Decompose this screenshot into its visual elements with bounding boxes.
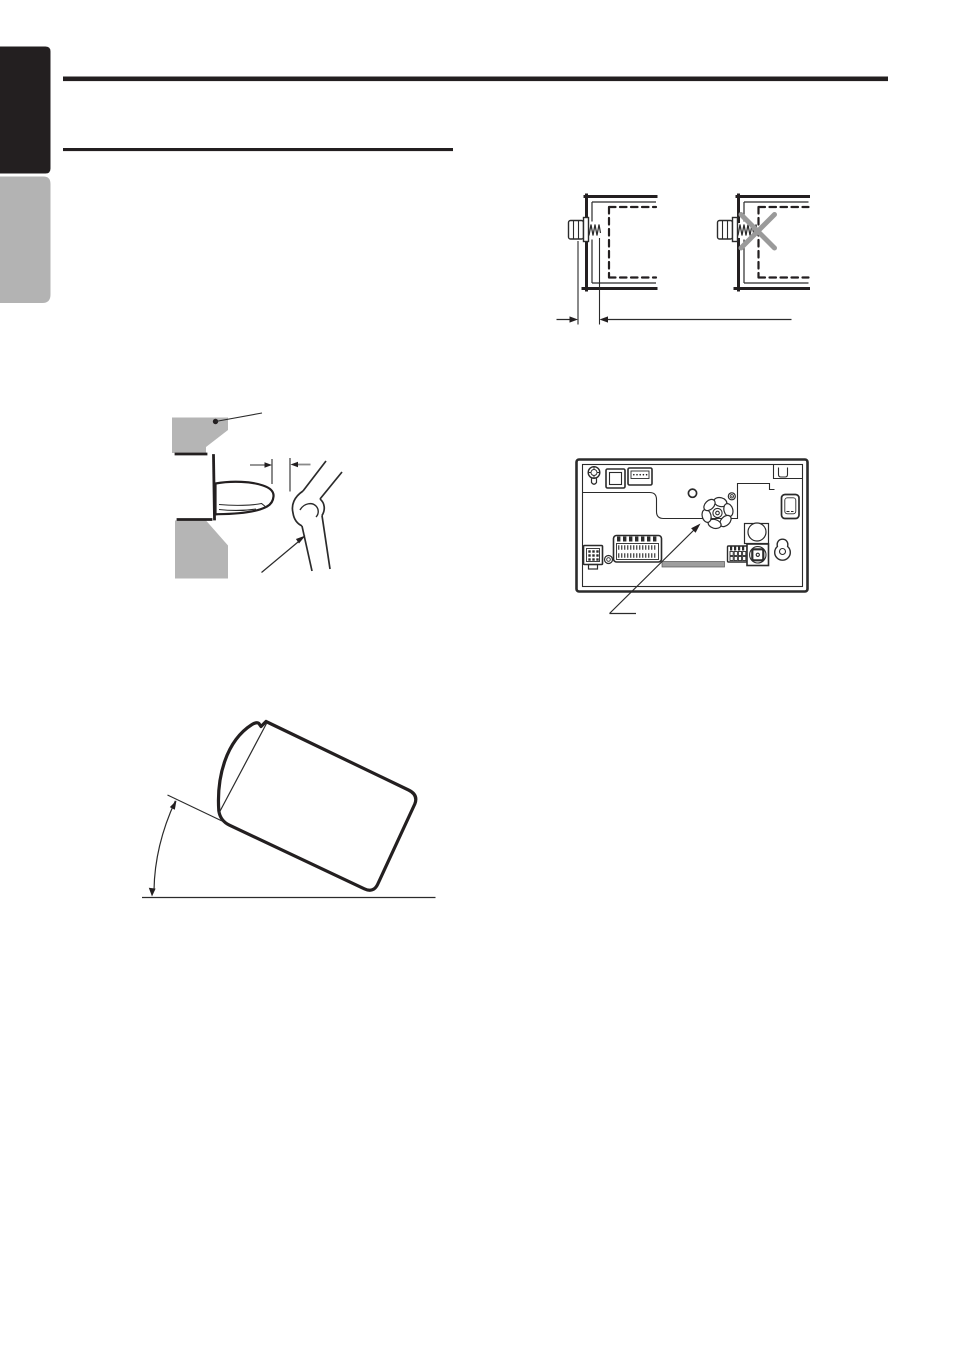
header-rule — [63, 77, 888, 82]
edge-tab-upper — [0, 47, 51, 174]
screw-length-figure — [557, 195, 809, 325]
dimension-arrow-left — [600, 316, 609, 322]
rca-jack-icon — [747, 544, 769, 566]
page-graphics — [0, 0, 954, 1351]
rear-panel-outline — [577, 460, 808, 592]
unit-front-panel-nose — [216, 482, 274, 515]
trim-plate-edge — [214, 456, 215, 520]
angle-reference-line — [168, 795, 223, 821]
vent-slot — [662, 562, 725, 568]
page-chrome — [0, 47, 888, 304]
sleeve-incorrect — [718, 195, 809, 290]
sleeve-correct — [569, 195, 657, 290]
screw-threads — [589, 225, 601, 236]
gap-arrow-left — [291, 462, 299, 468]
angle-arc-arrow — [149, 801, 177, 897]
manual-page — [0, 0, 954, 1351]
fist-icon — [292, 461, 342, 571]
dashboard-trim-upper-block — [172, 418, 228, 454]
section-title-rule — [63, 148, 453, 151]
panel-gap-figure — [172, 413, 342, 579]
unit-dashed-outline — [609, 207, 656, 278]
dashboard-trim-lower-block — [175, 521, 228, 579]
leader-to-fist — [262, 536, 306, 573]
mounting-angle-figure — [142, 722, 436, 898]
gap-arrow-right — [265, 462, 273, 468]
unit-side-outline — [218, 722, 415, 891]
dimension-arrow-right — [570, 316, 579, 322]
rear-panel-figure — [577, 460, 808, 614]
hex-screw-icon — [569, 218, 601, 242]
edge-tab-lower — [0, 177, 51, 304]
